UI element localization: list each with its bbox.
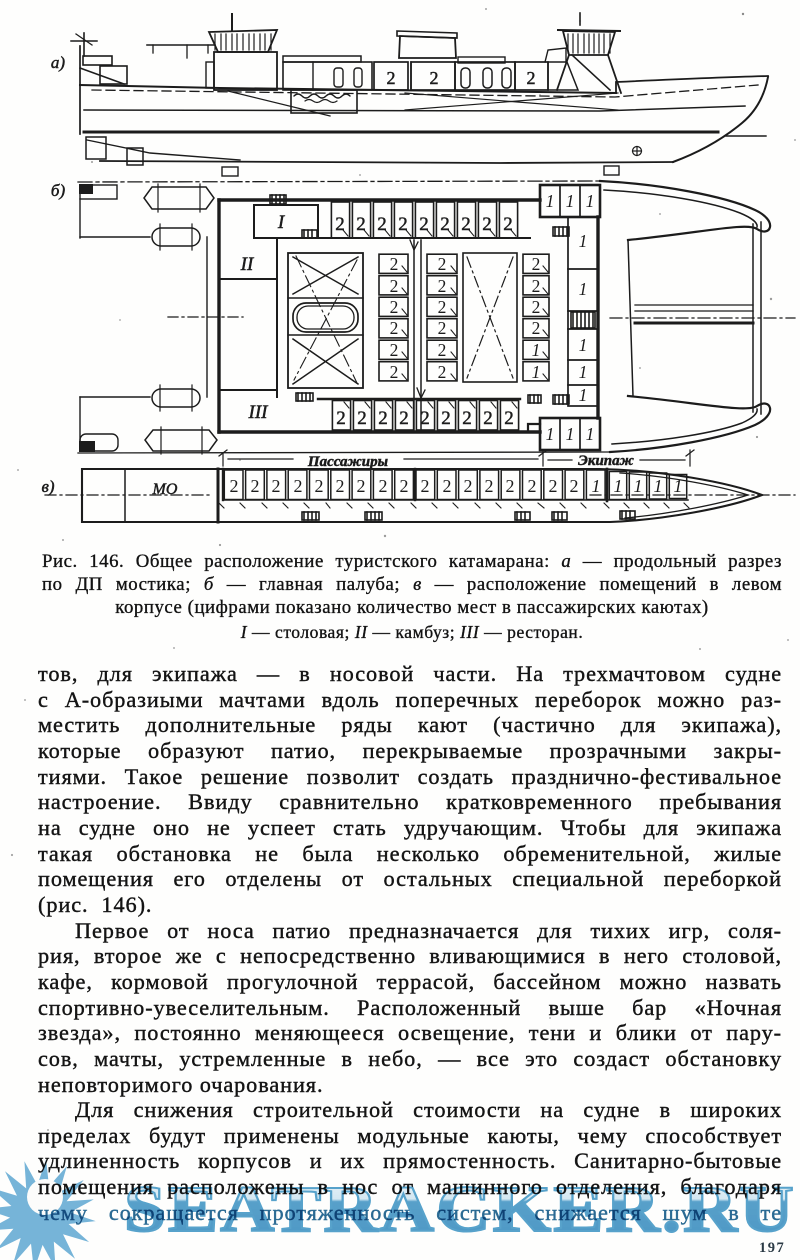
svg-text:2: 2 xyxy=(398,214,408,235)
svg-text:2: 2 xyxy=(532,297,541,317)
svg-text:2: 2 xyxy=(438,362,447,382)
svg-text:2: 2 xyxy=(485,476,494,496)
svg-text:1: 1 xyxy=(579,385,588,405)
svg-text:2: 2 xyxy=(400,476,409,496)
svg-text:1: 1 xyxy=(579,279,588,299)
svg-text:1: 1 xyxy=(579,335,588,355)
svg-text:2: 2 xyxy=(440,214,450,235)
svg-text:2: 2 xyxy=(377,214,387,235)
svg-text:2: 2 xyxy=(390,340,399,360)
svg-text:1: 1 xyxy=(579,362,588,382)
svg-text:2: 2 xyxy=(230,476,239,496)
svg-text:2: 2 xyxy=(335,214,345,235)
svg-text:2: 2 xyxy=(357,408,367,429)
svg-text:2: 2 xyxy=(356,214,366,235)
svg-text:2: 2 xyxy=(272,476,281,496)
svg-text:в): в) xyxy=(41,477,54,496)
svg-text:1: 1 xyxy=(566,191,575,211)
svg-text:2: 2 xyxy=(390,254,399,274)
svg-text:2: 2 xyxy=(528,476,537,496)
svg-text:2: 2 xyxy=(532,254,541,274)
svg-text:2: 2 xyxy=(527,68,536,88)
svg-text:2: 2 xyxy=(390,362,399,382)
svg-text:2: 2 xyxy=(251,476,260,496)
svg-text:2: 2 xyxy=(438,340,447,360)
svg-text:2: 2 xyxy=(336,408,346,429)
svg-text:II: II xyxy=(240,254,255,275)
svg-text:а): а) xyxy=(51,53,66,72)
svg-text:2: 2 xyxy=(336,476,345,496)
svg-text:2: 2 xyxy=(462,408,472,429)
svg-text:2: 2 xyxy=(532,276,541,296)
svg-text:1: 1 xyxy=(654,476,663,496)
svg-text:2: 2 xyxy=(438,297,447,317)
svg-text:2: 2 xyxy=(503,214,513,235)
svg-text:2: 2 xyxy=(532,318,541,338)
svg-text:1: 1 xyxy=(579,231,588,251)
svg-text:1: 1 xyxy=(634,476,643,496)
svg-text:Экипаж: Экипаж xyxy=(578,453,634,469)
svg-text:1: 1 xyxy=(532,362,541,382)
svg-text:I: I xyxy=(277,212,286,233)
svg-text:1: 1 xyxy=(566,424,575,444)
svg-text:б): б) xyxy=(51,181,66,200)
svg-text:1: 1 xyxy=(586,424,595,444)
svg-text:1: 1 xyxy=(546,191,555,211)
svg-text:2: 2 xyxy=(421,476,430,496)
svg-text:1: 1 xyxy=(532,340,541,360)
svg-text:Пассажиры: Пассажиры xyxy=(307,454,388,470)
svg-text:1: 1 xyxy=(614,476,623,496)
svg-text:2: 2 xyxy=(464,476,473,496)
svg-text:2: 2 xyxy=(390,318,399,338)
svg-text:2: 2 xyxy=(357,476,366,496)
svg-text:2: 2 xyxy=(378,408,388,429)
svg-text:2: 2 xyxy=(506,476,515,496)
svg-text:2: 2 xyxy=(399,408,409,429)
svg-text:2: 2 xyxy=(549,476,558,496)
svg-text:2: 2 xyxy=(504,408,514,429)
svg-text:1: 1 xyxy=(546,424,555,444)
svg-text:1: 1 xyxy=(586,191,595,211)
svg-text:2: 2 xyxy=(419,214,429,235)
svg-text:2: 2 xyxy=(483,408,493,429)
svg-text:1: 1 xyxy=(592,476,601,496)
svg-text:2: 2 xyxy=(379,476,388,496)
svg-text:2: 2 xyxy=(570,476,579,496)
svg-text:2: 2 xyxy=(438,318,447,338)
svg-text:III: III xyxy=(248,402,270,423)
svg-text:2: 2 xyxy=(461,214,471,235)
svg-text:2: 2 xyxy=(430,68,439,88)
svg-text:2: 2 xyxy=(387,68,396,88)
svg-text:2: 2 xyxy=(390,276,399,296)
svg-text:2: 2 xyxy=(438,276,447,296)
svg-text:2: 2 xyxy=(482,214,492,235)
svg-text:2: 2 xyxy=(294,476,303,496)
svg-text:2: 2 xyxy=(438,254,447,274)
svg-text:2: 2 xyxy=(443,476,452,496)
svg-text:2: 2 xyxy=(390,297,399,317)
svg-text:1: 1 xyxy=(674,476,683,496)
svg-text:2: 2 xyxy=(315,476,324,496)
svg-text:2: 2 xyxy=(441,408,451,429)
